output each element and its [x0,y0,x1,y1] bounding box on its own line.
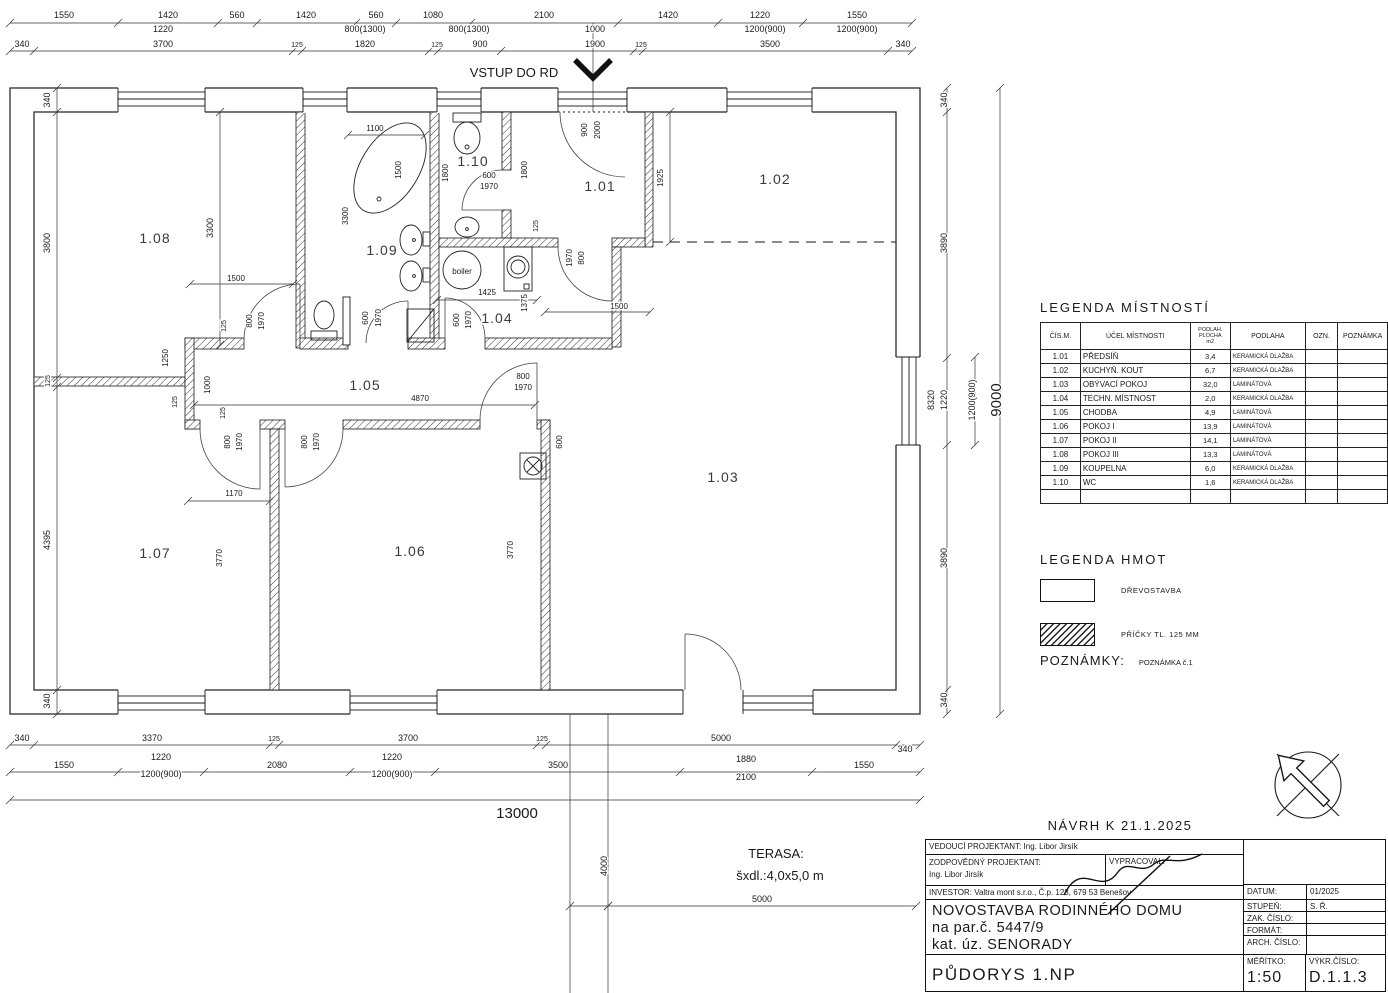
dim-label: 125 [221,320,228,332]
legend-row: 1.07POKOJ II14,1LAMINÁTOVÁ [1041,434,1388,448]
legend-cell: 14,1 [1190,434,1230,448]
dim-label: 1550 [847,10,867,20]
partition-wall [502,210,511,238]
dim-label: 1970 [235,433,244,451]
legend-cell: TECHN. MÍSTNOST [1080,392,1190,406]
dim-label: 1200(900) [371,769,412,779]
legend-cell: 2,0 [1190,392,1230,406]
dim-label: 125 [536,736,548,743]
dim-label: 1500 [610,302,628,311]
dim-label: 1220 [153,24,173,34]
legend-cell [1305,490,1337,504]
legend-cell [1190,490,1230,504]
dim-label: 1200(900) [140,769,181,779]
dim-label: 800 [516,372,530,381]
legend-row: 1.06POKOJ I13,9LAMINÁTOVÁ [1041,420,1388,434]
dim-label: 1250 [161,349,170,367]
partition-wall [502,112,511,170]
dim-label: 1220 [939,390,949,410]
scale-row: MĚŘÍTKO: 1:50 VÝKR.ČÍSLO: D.1.1.3 [1244,955,1385,991]
legend-cell [1338,434,1388,448]
legend-cell [1305,406,1337,420]
partition-wall [541,420,550,690]
format-row: FORMÁT: [1244,924,1385,936]
legend-cell [1305,392,1337,406]
legend-cell [1305,378,1337,392]
arch-cislo-row: ARCH. ČÍSLO: [1244,936,1385,955]
dim-label: 1420 [158,10,178,20]
dim-label: 1420 [296,10,316,20]
poznamky: POZNÁMKY: POZNÁMKA č.1 [1040,653,1193,668]
dim-label: 125 [291,42,303,49]
partition-wall [343,420,480,429]
dim-label: 800(1300) [448,24,489,34]
empty-box [1244,840,1385,885]
dim-label: 5000 [752,894,772,904]
dim-label: 800 [245,314,254,328]
legend-cell: KERAMICKÁ DLAŽBA [1230,364,1305,378]
legend-cell [1041,490,1081,504]
legend-row: 1.01PŘEDSÍŇ3,4KERAMICKÁ DLAŽBA [1041,350,1388,364]
dim-label: 1550 [54,10,74,20]
dim-label: 1200(900) [967,379,977,420]
toilet-tank [453,113,481,122]
dim-label: 1100 [366,124,384,133]
legend-row: 1.09KOUPELNA6,0KERAMICKÁ DLAŽBA [1041,462,1388,476]
partition-wall [185,338,194,429]
legend-cell [1305,448,1337,462]
dim-label: 5000 [711,733,731,743]
dim-label: 125 [220,407,227,419]
legend-cell: KERAMICKÁ DLAŽBA [1230,476,1305,490]
room-label: 1.04 [481,310,512,326]
dim-label: 2080 [267,760,287,770]
door-swings [200,112,741,690]
dim-label: 4870 [411,394,429,403]
legend-cell: LAMINÁTOVÁ [1230,406,1305,420]
dim-label: 1425 [478,288,496,297]
legend-cell: 1,6 [1190,476,1230,490]
dim-label: 125 [45,375,52,387]
partition-wall [270,429,279,690]
washbasin [400,261,422,291]
partition-wall [439,238,558,247]
legend-cell [1338,350,1388,364]
toilet [314,301,334,329]
legend-cell: 1.08 [1041,448,1081,462]
dim-label: 1820 [355,39,375,49]
legend-cell [1338,406,1388,420]
legend-cell [1305,364,1337,378]
north-arrow-icon [1268,745,1341,818]
legend-cell: 1.04 [1041,392,1081,406]
legend-cell [1080,490,1190,504]
legend-cell: 13,3 [1190,448,1230,462]
legend-cell: OBÝVACÍ POKOJ [1080,378,1190,392]
room-label: 1.10 [457,153,488,169]
legend-cell [1230,490,1305,504]
dim-label: 1200(900) [744,24,785,34]
legend-row: 1.10WC1,6KERAMICKÁ DLAŽBA [1041,476,1388,490]
dim-label: 2000 [593,121,602,139]
legend-cell: LAMINÁTOVÁ [1230,420,1305,434]
dim-label: 3370 [142,733,162,743]
legend-cell [1305,434,1337,448]
dim-label: 4395 [42,530,52,550]
dim-label: 1925 [656,169,665,187]
dim-label: 1880 [736,754,756,764]
scale-value: 1:50 [1247,969,1302,987]
legend-cell: LAMINÁTOVÁ [1230,448,1305,462]
legend-cell: 1.05 [1041,406,1081,420]
drawing-sheet: 1550142056014205601080210014201220155012… [0,0,1388,993]
dim-label: 1970 [257,312,266,330]
legend-row [1041,490,1388,504]
dim-label: 1970 [464,311,473,329]
dim-label: 4000 [599,856,609,876]
door-arc [244,284,300,340]
wall-stubs [343,297,350,345]
datum-row: DATUM:01/2025 [1244,885,1385,900]
door-arc [366,301,408,343]
dim-label: 125 [172,396,179,408]
windows [118,88,920,714]
legend-row: 1.04TECHN. MÍSTNOST2,0KERAMICKÁ DLAŽBA [1041,392,1388,406]
dim-label: 1800 [520,161,529,179]
stupen-row: STUPEŇ:S. Ř. [1244,900,1385,912]
legend-cell: LAMINÁTOVÁ [1230,434,1305,448]
dim-label: 125 [635,42,647,49]
dim-label: 3300 [341,207,350,225]
legend-table: ČÍS.M.ÚČEL MÍSTNOSTIPODLAH.PLOCHAm2PODLA… [1040,322,1388,504]
legend-cell: POKOJ I [1080,420,1190,434]
room-label: 1.03 [707,469,738,485]
dim-label: 1000 [585,24,605,34]
dim-label: 800(1300) [344,24,385,34]
legend-cell: 1.09 [1041,462,1081,476]
legend-cell: 3,4 [1190,350,1230,364]
sink [455,217,479,237]
dim-label: 1970 [565,249,574,267]
room-label: 1.01 [584,178,615,194]
legend-cell: 32,0 [1190,378,1230,392]
legend-cell [1305,350,1337,364]
dim-label: 340 [897,744,912,754]
dim-label: 1000 [203,376,212,394]
dim-label: 560 [368,10,383,20]
legend-cell: 6,0 [1190,462,1230,476]
legend-cell: CHODBA [1080,406,1190,420]
legend-header: OZN. [1305,323,1337,350]
bathtub [339,110,441,226]
hmot-item: DŘEVOSTAVBA [1040,579,1199,602]
legend-cell: 4,9 [1190,406,1230,420]
dim-label: 8320 [926,390,936,410]
dim-label: 1200(900) [836,24,877,34]
dim-label: 600 [555,435,564,449]
washbasin [400,225,422,255]
dim-label: 3700 [398,733,418,743]
dim-label: 2100 [534,10,554,20]
dim-label: 340 [939,692,949,707]
legend-cell [1338,392,1388,406]
drawing-number: D.1.1.3 [1309,969,1382,987]
dim-label: 900 [472,39,487,49]
legend-cell [1338,490,1388,504]
material-swatch-pricky [1040,623,1095,646]
dim-label: 340 [895,39,910,49]
dim-label: 9000 [988,383,1005,416]
legend-row: 1.03OBÝVACÍ POKOJ32,0LAMINÁTOVÁ [1041,378,1388,392]
room-label: 1.09 [366,242,397,258]
legend-header: POZNÁMKA [1338,323,1388,350]
legend-cell: POKOJ II [1080,434,1190,448]
legend-cell [1305,476,1337,490]
legend-cell: WC [1080,476,1190,490]
dim-label: 1080 [423,10,443,20]
partition-wall [260,420,285,429]
legend-cell [1338,420,1388,434]
legend-row: 1.08POKOJ III13,3LAMINÁTOVÁ [1041,448,1388,462]
entry-label: VSTUP DO RD [470,65,559,80]
opening-masks [118,87,921,715]
dim-label: 1170 [225,489,243,498]
dim-label: 1375 [520,294,529,312]
legenda-hmot: LEGENDA HMOT DŘEVOSTAVBA PŘÍČKY TL. 125 … [1040,552,1199,667]
legend-cell [1338,476,1388,490]
legend-header: PODLAH.PLOCHAm2 [1190,323,1230,350]
drawing-name: PŮDORYS 1.NP [926,955,1243,991]
partition-wall [485,338,612,349]
legend-cell: 1.07 [1041,434,1081,448]
dim-label: 600 [452,313,461,327]
legend-cell [1338,364,1388,378]
partition-wall [612,238,645,247]
partition-walls [34,112,653,690]
dim-label: 340 [42,92,52,107]
legend-cell: 13,9 [1190,420,1230,434]
legend-header: ČÍS.M. [1041,323,1081,350]
partition-wall [408,338,445,349]
dim-label: 1970 [480,182,498,191]
dim-label: 800 [223,435,232,449]
legend-cell: 6,7 [1190,364,1230,378]
room-label: 1.07 [139,545,170,561]
dim-label: 3770 [506,541,515,559]
room-label: 1.08 [139,230,170,246]
dim-label: 800 [300,435,309,449]
dim-label: 1500 [394,161,403,179]
legend-cell: 1.02 [1041,364,1081,378]
legend-cell: KERAMICKÁ DLAŽBA [1230,350,1305,364]
dim-label: 125 [268,736,280,743]
legend-header: ÚČEL MÍSTNOSTI [1080,323,1190,350]
legend-cell: POKOJ III [1080,448,1190,462]
terasa-label: TERASA: [748,846,804,861]
zak-cislo-row: ZAK. ČÍSLO: [1244,912,1385,924]
dim-label: 1970 [312,433,321,451]
legend-cell: KUCHYŇ. KOUT [1080,364,1190,378]
dim-label: 1900 [585,39,605,49]
legend-row: 1.02KUCHYŇ. KOUT6,7KERAMICKÁ DLAŽBA [1041,364,1388,378]
door-arc [685,634,741,690]
partition-wall [645,112,653,247]
dim-label: 3800 [42,233,52,253]
dim-label: 800 [577,251,586,265]
legend-cell [1338,378,1388,392]
dim-label: 3890 [939,548,949,568]
dim-label: 1220 [151,752,171,762]
dim-label: 340 [42,693,52,708]
partition-wall [612,247,621,347]
dim-label: 900 [580,123,589,137]
navrh-date: NÁVRH K 21.1.2025 [985,818,1255,833]
room-label: 1.02 [759,171,790,187]
dim-label: 600 [482,171,496,180]
dim-label: 1800 [441,164,450,182]
dim-label: 600 [361,311,370,325]
dim-label: 3700 [153,39,173,49]
dim-label: 3890 [939,233,949,253]
hmot-title: LEGENDA HMOT [1040,552,1199,567]
legend-cell: KERAMICKÁ DLAŽBA [1230,392,1305,406]
dim-label: 3300 [205,218,215,238]
dim-label: 3770 [215,549,224,567]
legend-cell: 1.03 [1041,378,1081,392]
legend-cell [1338,462,1388,476]
legend-row: 1.05CHODBA4,9LAMINÁTOVÁ [1041,406,1388,420]
dim-label: 1550 [54,760,74,770]
dim-label: 1970 [514,383,532,392]
signature [1050,840,1260,920]
hmot-item: PŘÍČKY TL. 125 MM [1040,623,1199,646]
dim-label: 1420 [658,10,678,20]
legend-cell: LAMINÁTOVÁ [1230,378,1305,392]
dim-label: 340 [939,92,949,107]
legend-cell: 1.06 [1041,420,1081,434]
legend-title: LEGENDA MÍSTNOSTÍ [1040,300,1388,315]
dim-label: 1550 [854,760,874,770]
dim-label: 2100 [736,772,756,782]
legend-cell: 1.01 [1041,350,1081,364]
room-label: 1.05 [349,377,380,393]
dim-label: 3500 [548,760,568,770]
legend-cell: KOUPELNA [1080,462,1190,476]
dim-label: 3500 [760,39,780,49]
legend-cell: 1.10 [1041,476,1081,490]
legend-header: PODLAHA [1230,323,1305,350]
dim-label: 340 [14,733,29,743]
dim-label: 1500 [227,274,245,283]
room-label: 1.06 [394,543,425,559]
dim-label: 560 [229,10,244,20]
dim-label: 1970 [374,309,383,327]
boiler-label: boiler [452,267,472,276]
legend-cell [1305,420,1337,434]
material-swatch-drevostavba [1040,579,1095,602]
partition-wall [296,112,305,348]
dim-label: 125 [431,42,443,49]
legend-cell: KERAMICKÁ DLAŽBA [1230,462,1305,476]
terasa-size: šxdl.:4,0x5,0 m [736,868,823,883]
dim-label: 1220 [382,752,402,762]
legend-mistnosti: LEGENDA MÍSTNOSTÍ ČÍS.M.ÚČEL MÍSTNOSTIPO… [1040,300,1388,504]
legend-cell: PŘEDSÍŇ [1080,350,1190,364]
dim-label: 13000 [496,805,538,822]
legend-cell [1338,448,1388,462]
partition-wall [185,420,200,429]
dim-label: 125 [533,220,540,232]
legend-cell [1305,462,1337,476]
dim-label: 1220 [750,10,770,20]
dim-label: 340 [14,39,29,49]
